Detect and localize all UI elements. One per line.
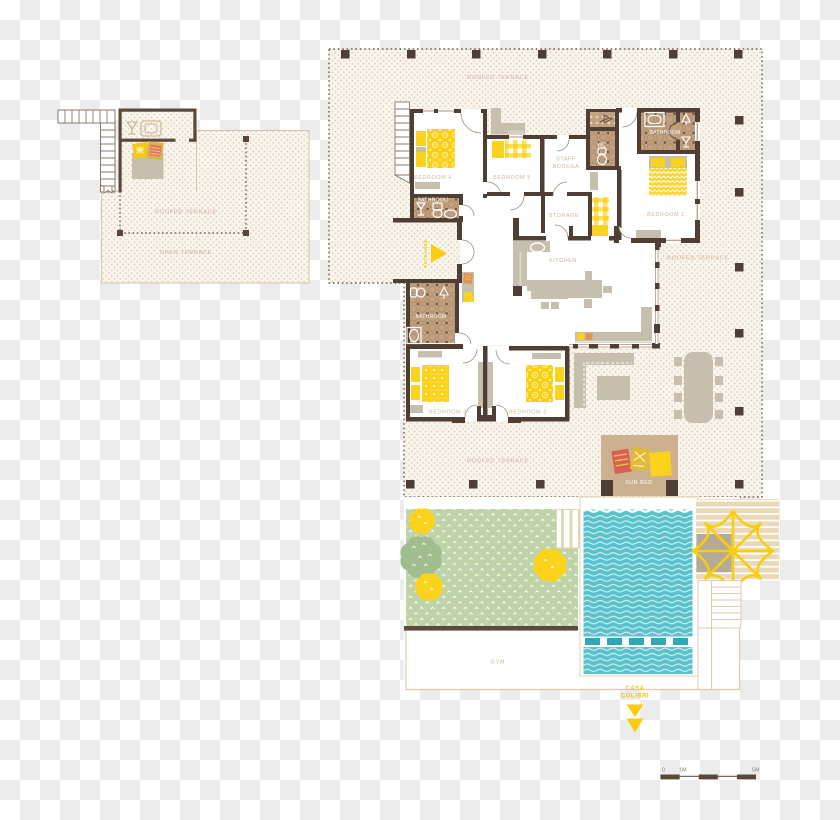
svg-text:STAFF: STAFF	[556, 157, 576, 163]
svg-text:1M: 1M	[679, 768, 687, 774]
svg-text:ROOFED TERRACE: ROOFED TERRACE	[467, 459, 529, 465]
svg-text:ROOFED TERRACE: ROOFED TERRACE	[155, 210, 217, 216]
svg-text:BATHROOM: BATHROOM	[418, 198, 449, 204]
svg-text:BEDROOM 3: BEDROOM 3	[429, 410, 467, 416]
svg-text:BEDROOM 1: BEDROOM 1	[647, 212, 685, 218]
svg-text:STORAGE: STORAGE	[549, 213, 579, 219]
svg-text:ROOFED TERRACE: ROOFED TERRACE	[467, 75, 529, 81]
svg-text:ENTRANCE: ENTRANCE	[423, 239, 428, 268]
svg-text:SUN BED: SUN BED	[625, 480, 652, 486]
svg-text:BEDROOM 5: BEDROOM 5	[493, 175, 531, 181]
svg-text:0: 0	[662, 768, 665, 774]
svg-text:BEDROOM 2: BEDROOM 2	[509, 410, 547, 416]
svg-text:5M: 5M	[752, 768, 760, 774]
svg-text:OPEN TERRACE: OPEN TERRACE	[160, 250, 212, 256]
svg-text:BEDROOM 4: BEDROOM 4	[414, 175, 452, 181]
svg-text:ROOFED TERRACE: ROOFED TERRACE	[667, 256, 729, 262]
svg-text:BATHROOM: BATHROOM	[416, 314, 447, 320]
svg-text:COLIBRI: COLIBRI	[621, 694, 649, 700]
svg-text:KITCHEN: KITCHEN	[549, 258, 577, 264]
svg-text:BATHROOM: BATHROOM	[650, 130, 681, 136]
svg-text:GYM: GYM	[491, 660, 506, 666]
svg-text:BODEGA: BODEGA	[553, 164, 580, 170]
svg-text:CASA: CASA	[625, 686, 644, 692]
svg-text:WC: WC	[597, 143, 606, 149]
